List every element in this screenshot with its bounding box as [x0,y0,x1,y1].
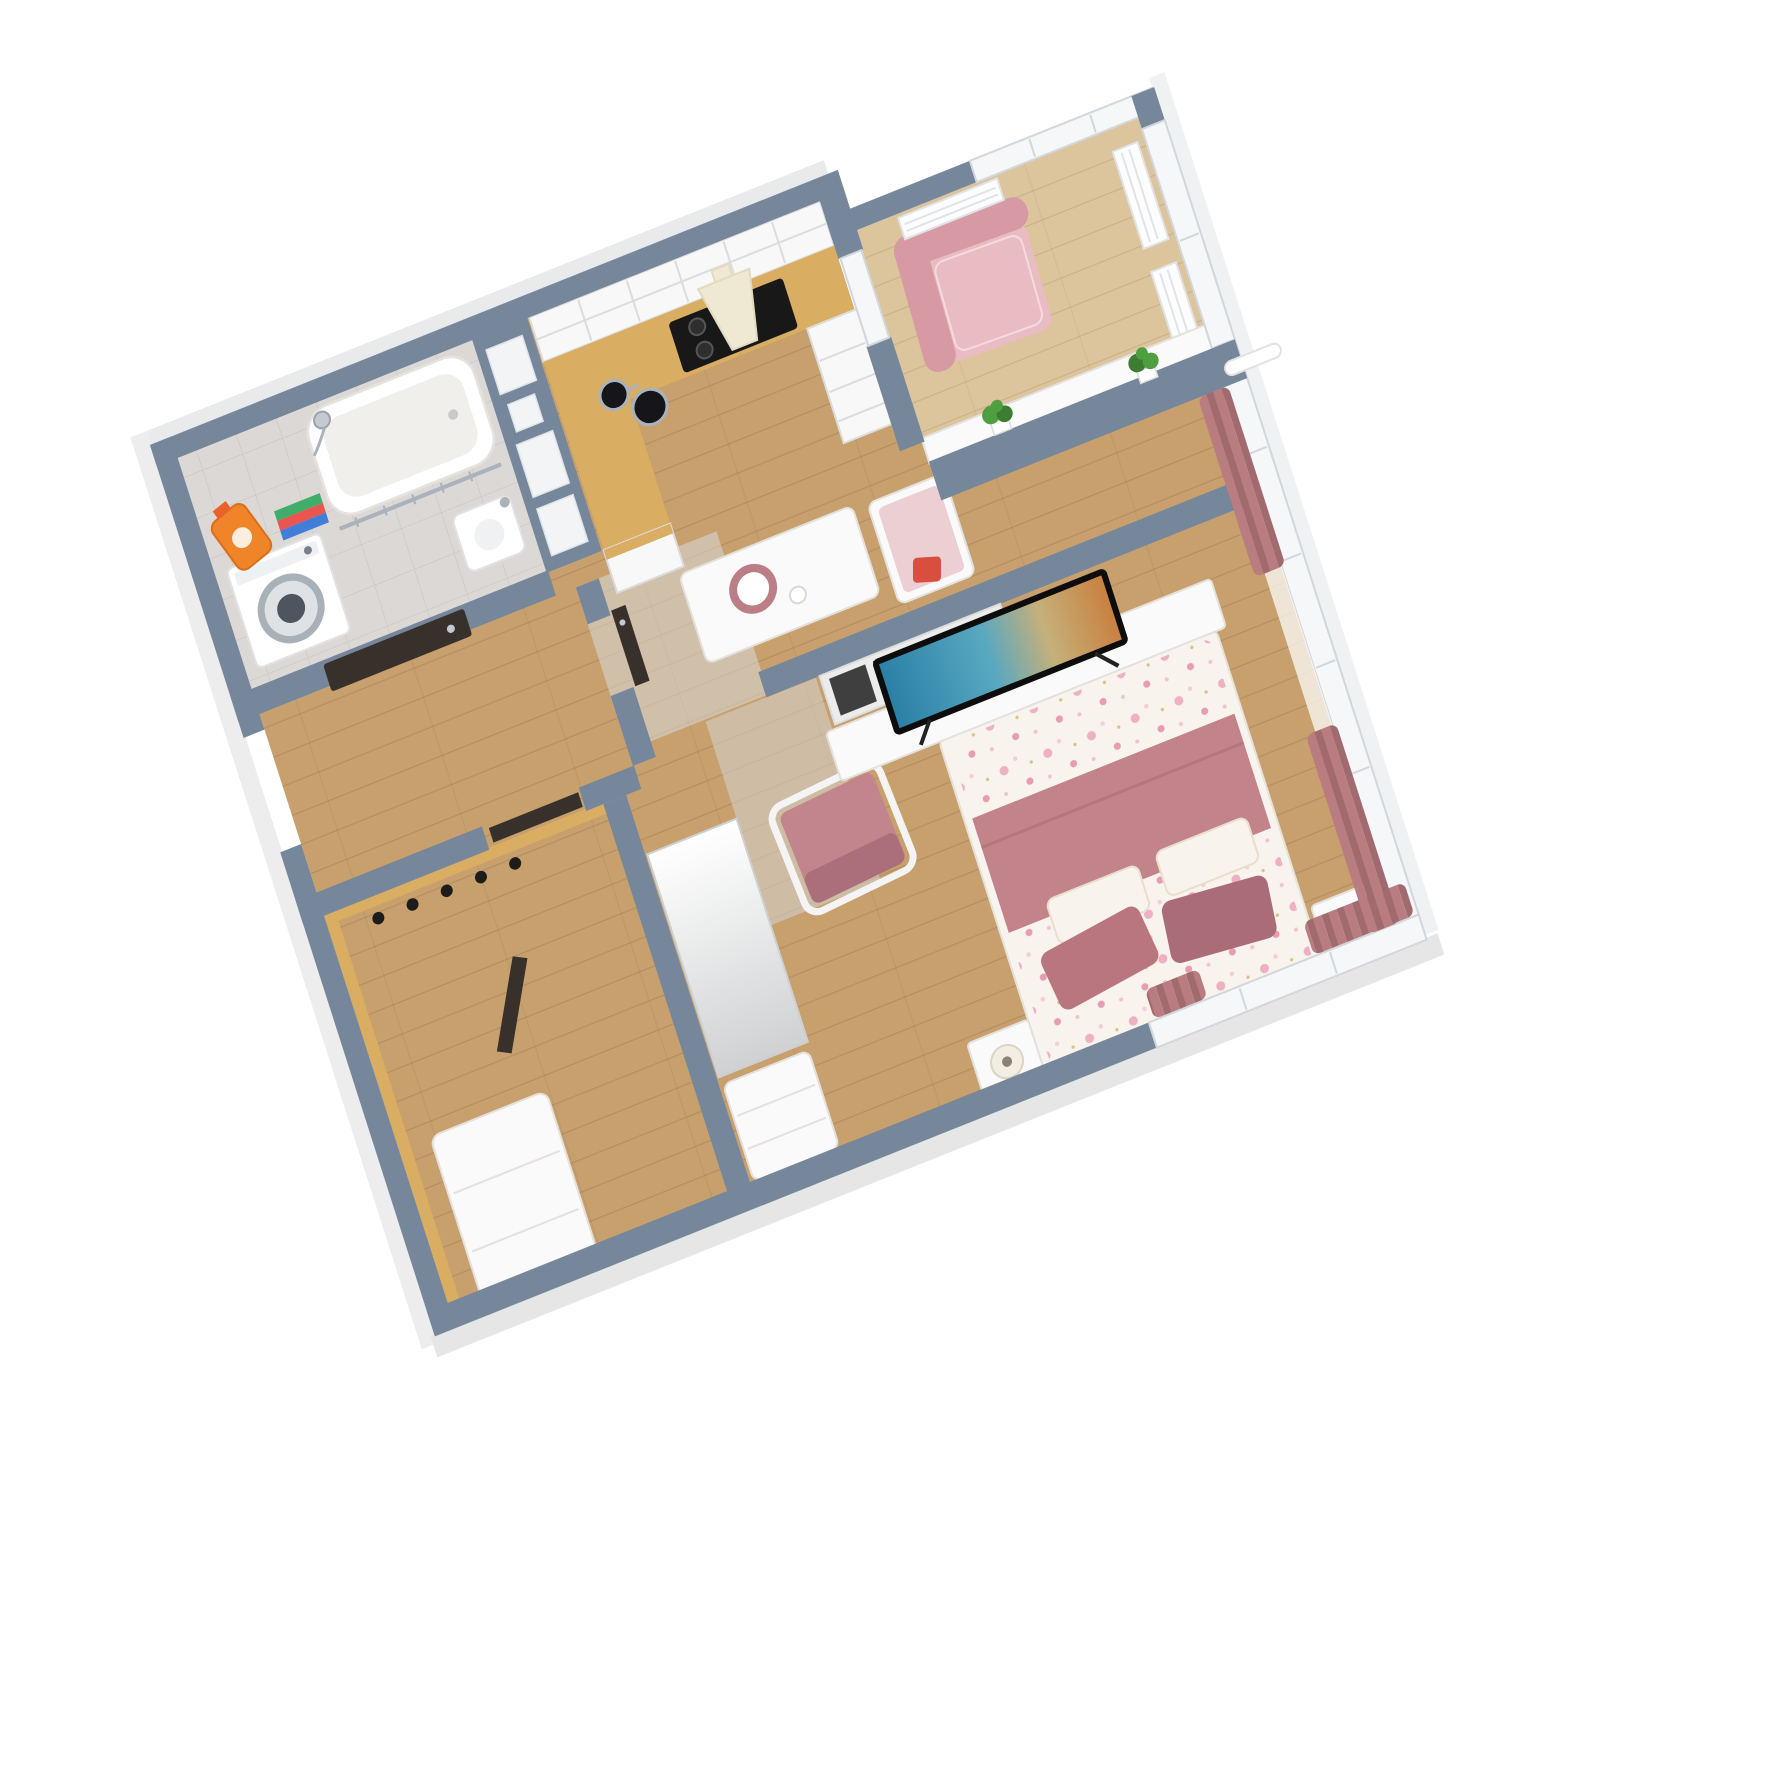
red-pillow [913,556,941,583]
apartment-plan [130,19,1470,1361]
floorplan-svg [0,0,1776,1776]
floorplan-stage [0,0,1776,1776]
